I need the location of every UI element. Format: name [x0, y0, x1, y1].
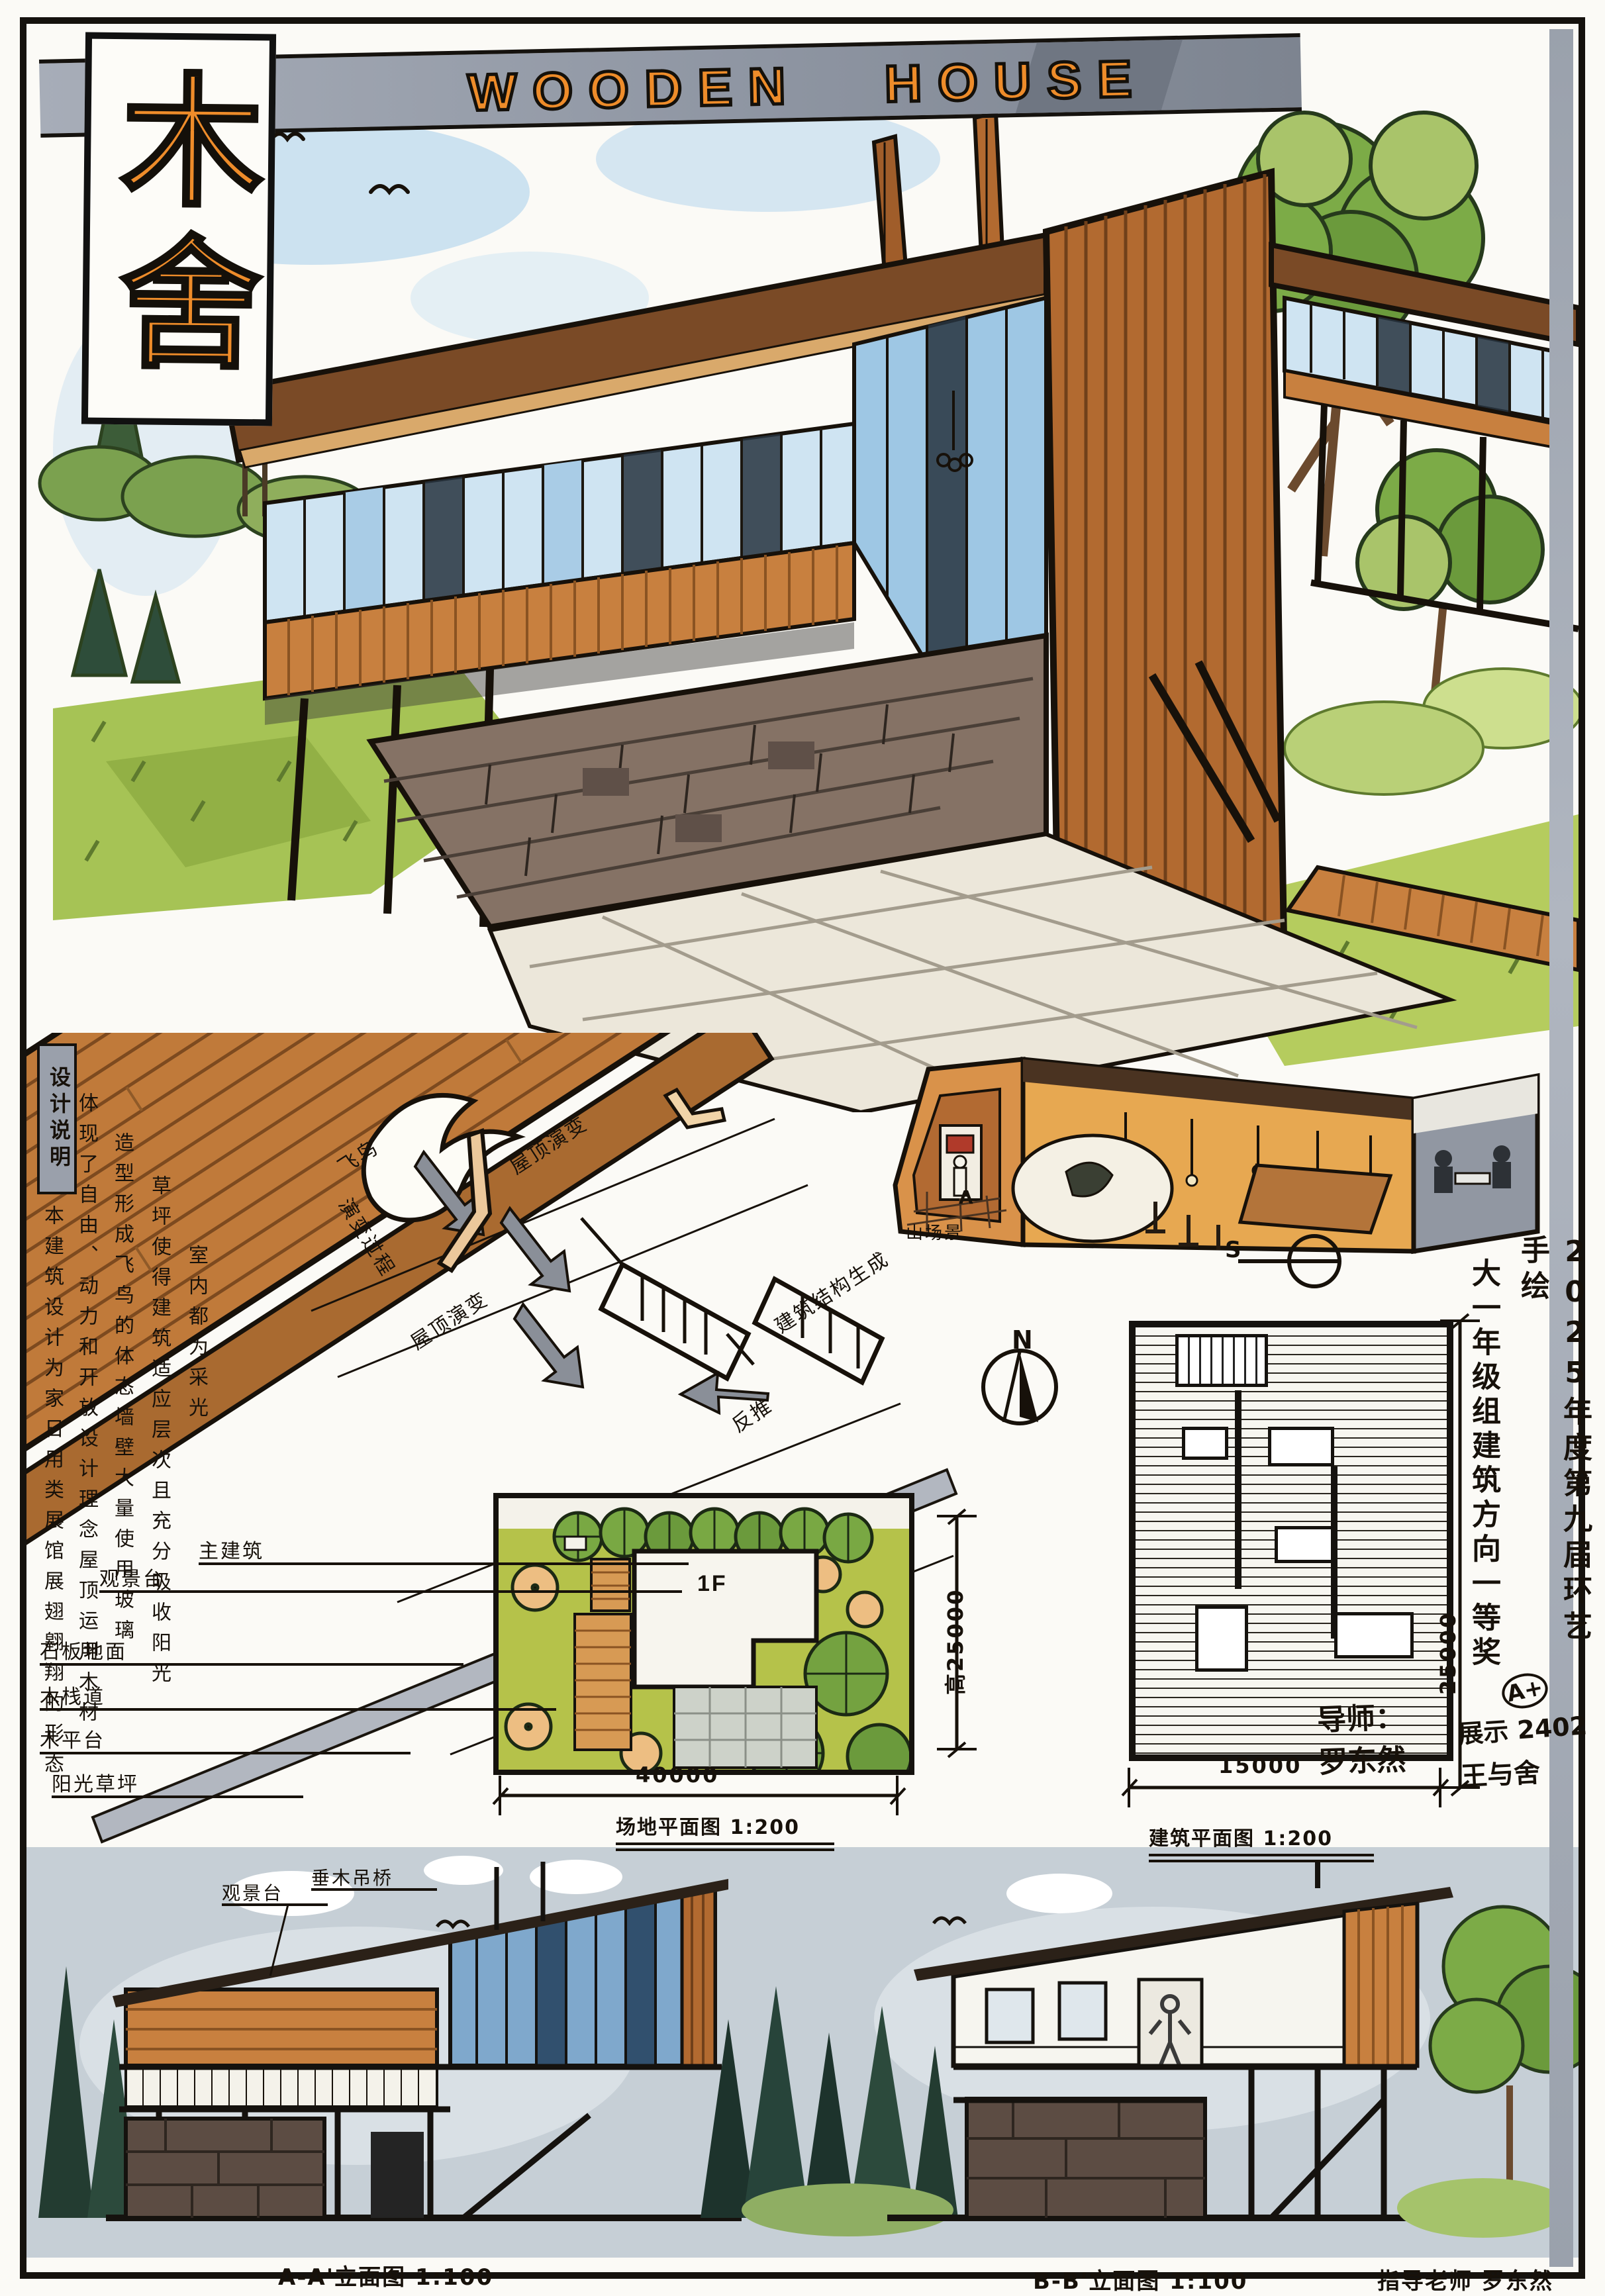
callout-line: [40, 1663, 463, 1666]
callout-main-building: 主建筑: [199, 1535, 264, 1564]
callout-line: [40, 1752, 411, 1754]
b-elevation-caption: B-B'立面图 1:100: [1033, 2263, 1247, 2295]
award-column-right: 2025年度第九届环艺手绘: [1511, 1235, 1596, 1665]
floor-plan-caption: 建筑平面图 1:200: [1149, 1827, 1333, 1850]
site-plan-width-dim: 40000: [636, 1762, 719, 1788]
mentor-note-line2: 罗东然: [1318, 1736, 1406, 1782]
elevation-label-line: [311, 1888, 437, 1891]
logo-box: 木舍: [81, 32, 276, 426]
interior-scene-label: 山场景: [906, 1220, 963, 1244]
floor-plan-width-dim: 15000: [1218, 1753, 1302, 1778]
callout-viewing-deck: 观景台: [99, 1562, 165, 1592]
elevation-label-deck: 观景台: [222, 1879, 283, 1905]
design-notes-header: 设计说明: [37, 1043, 77, 1194]
caption-underline: [616, 1848, 834, 1851]
tutor-caption: 指导老师 罗东然: [1377, 2263, 1553, 2295]
site-plan-height-dim: 高25000: [939, 1588, 969, 1695]
north-label: N: [1012, 1325, 1035, 1355]
site-plan-caption-wrap: 场地平面图 1:200: [616, 1811, 834, 1851]
callout-line: [99, 1590, 682, 1593]
callout-stone-paving: 石板地面: [40, 1635, 127, 1664]
callout-boardwalk: 木栈道: [40, 1680, 105, 1709]
callout-sun-lawn: 阳光草坪: [52, 1768, 139, 1797]
design-note-col: 室内都为采光: [184, 1245, 208, 1463]
elevation-label-top: 垂木吊桥: [311, 1864, 393, 1890]
logo-title-cn: 木舍: [106, 66, 252, 392]
interior-floor-marker: A: [959, 1186, 975, 1208]
floor-plan-caption-wrap: 建筑平面图 1:200: [1149, 1822, 1374, 1862]
site-plan-caption: 场地平面图 1:200: [616, 1816, 800, 1839]
award-name-line: 王与舍: [1460, 1751, 1541, 1794]
a-elevation-caption: A-A'立面图 1:100: [278, 2259, 493, 2291]
callout-line: [199, 1562, 689, 1565]
callout-line: [52, 1795, 303, 1798]
floor-plan-height-dim: 25000: [1435, 1611, 1461, 1695]
award-column-left: 大一年级组建筑方向一等奖: [1462, 1258, 1504, 1688]
caption-underline: [1149, 1860, 1374, 1862]
elevation-label-line: [222, 1903, 328, 1906]
mentor-note-line1: 导师：: [1316, 1694, 1405, 1739]
caption-underline: [616, 1842, 834, 1845]
caption-underline: [1149, 1854, 1374, 1856]
callout-wood-platform: 木平台: [40, 1724, 105, 1753]
presentation-board: 1F: [0, 0, 1605, 2296]
callout-line: [40, 1708, 556, 1711]
interior-compass-s: S: [1225, 1237, 1243, 1263]
design-note-col: 草坪使得建筑适应层次且充分吸收阳光: [147, 1175, 171, 1705]
mentor-note: 导师： 罗东然: [1316, 1694, 1406, 1782]
